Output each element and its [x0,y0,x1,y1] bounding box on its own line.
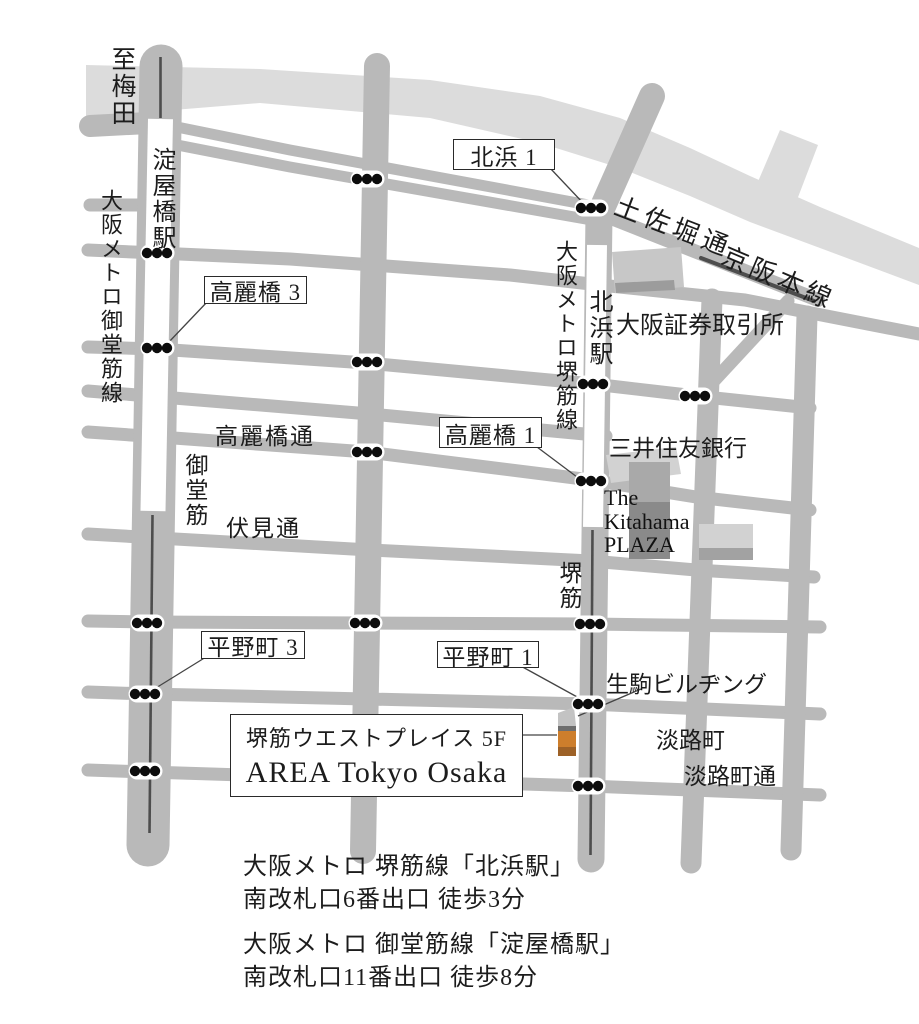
awajimachi-street-label: 淡路町通 [684,757,776,791]
street-vertical-2 [791,316,807,850]
fushimi-street-label: 伏見通 [226,509,301,543]
hiranomachi3-label: 平野町 3 [207,628,298,662]
plaza-line-1: The [604,486,690,510]
intersection-box-koraibashi3: 高麗橋 3 [204,276,307,304]
kitahama-station-label: 北浜駅 [581,289,616,367]
sakaisuji-street-label: 堺筋 [551,561,585,611]
koraibashi-street-label: 高麗橋通 [215,417,315,451]
access-route-2: 大阪メトロ 御堂筋線「淀屋橋駅」 南改札口11番出口 徒歩8分 [243,929,625,995]
access-route1-line1: 大阪メトロ 堺筋線「北浜駅」 [243,851,625,884]
destination-box: 堺筋ウエストプレイス 5F AREA Tokyo Osaka [230,714,523,797]
intersection-box-hiranomachi1: 平野町 1 [437,641,539,668]
midosuji-subway-line-label: 大阪メトロ御堂筋線 [94,189,126,405]
plaza-line-3: PLAZA [604,533,690,557]
east-building-base [699,548,753,560]
sakaisuji-subway-line-label: 大阪メトロ堺筋線 [549,240,581,432]
access-notes: 大阪メトロ 堺筋線「北浜駅」 南改札口6番出口 徒歩3分 大阪メトロ 御堂筋線「… [243,851,625,1007]
destination-marker-base [558,747,576,756]
access-route1-line2: 南改札口6番出口 徒歩3分 [243,884,625,917]
ikoma-building-label: 生駒ビルヂング [606,665,767,699]
access-route2-line2: 南改札口11番出口 徒歩8分 [243,962,625,995]
destination-name-label: AREA Tokyo Osaka [246,756,508,790]
koraibashi3-label: 高麗橋 3 [210,273,301,307]
intersection-box-kitahama1: 北浜 1 [453,139,555,170]
intersection-box-hiranomachi3: 平野町 3 [201,631,305,659]
koraibashi1-label: 高麗橋 1 [445,416,536,450]
intersection-box-koraibashi1: 高麗橋 1 [439,417,542,448]
hiranomachi1-label: 平野町 1 [442,638,533,672]
east-building-top [699,524,753,548]
kitahama-plaza-label: The Kitahama PLAZA [604,486,690,557]
yodoyabashi-station-label: 淀屋橋駅 [144,147,179,251]
access-map: 至梅田 淀屋橋駅 大阪メトロ御堂筋線 御堂筋 大阪メトロ堺筋線 北浜駅 堺筋 土… [0,0,919,1024]
destination-marker-orange [558,731,576,747]
midosuji-street-label: 御堂筋 [177,453,211,528]
destination-building-label: 堺筋ウエストプレイス 5F [246,721,507,753]
destination-marker-roof [558,726,576,731]
plaza-line-2: Kitahama [604,510,690,534]
stock-exchange-label: 大阪証券取引所 [616,305,784,340]
access-route-1: 大阪メトロ 堺筋線「北浜駅」 南改札口6番出口 徒歩3分 [243,851,625,917]
access-route2-line1: 大阪メトロ 御堂筋線「淀屋橋駅」 [243,929,625,962]
to-umeda-label: 至梅田 [103,46,139,127]
awajimachi-district-label: 淡路町 [656,721,725,755]
kitahama1-label: 北浜 1 [470,138,537,172]
smbc-label: 三井住友銀行 [609,429,747,463]
